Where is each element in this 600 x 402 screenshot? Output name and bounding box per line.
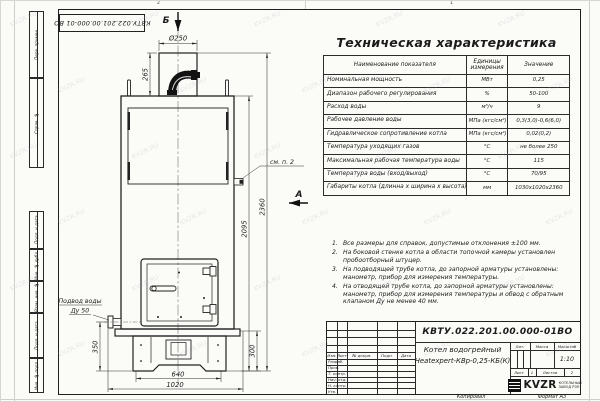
frame-column-label: Взам. инв. №: [30, 282, 43, 312]
frame-column-box: Перв. примен.: [29, 11, 44, 78]
drawing-sheet: 2 1 Перв. примен. Справ. № Подп. и дата …: [0, 0, 600, 402]
base-plinth: [133, 336, 226, 371]
sampling-fitting: см. п. 2: [234, 159, 304, 185]
dimensions: Ø250 265 2360 2095 350 300 640: [92, 35, 272, 393]
water-inlet: Подвод воды Ду 50: [58, 298, 141, 328]
furnace-door: [141, 259, 218, 326]
inlet-label-line2: Ду 50: [70, 308, 89, 315]
dim-chimney-height: 265: [142, 68, 150, 81]
dim-total-height: 2360: [259, 198, 267, 215]
frame-column-label: Справ. №: [30, 79, 43, 167]
frame-column-label: Инв. № подл.: [30, 359, 43, 392]
frame-column-label: Инв. № дубл.: [30, 250, 43, 280]
section-arrow-top: Б: [163, 12, 178, 31]
frame-column-box: Инв. № дубл.: [29, 249, 44, 281]
frame-column-box: Взам. инв. №: [29, 281, 44, 313]
dim-chimney-diameter: Ø250: [168, 35, 187, 43]
dim-inlet-height: 350: [92, 341, 100, 354]
dim-base-height: 300: [249, 345, 257, 358]
boiler-drawing: Б А см. п. 2: [1, 1, 600, 401]
section-letter-b: Б: [163, 16, 170, 26]
callout-label: см. п. 2: [270, 159, 294, 166]
frame-column-box: Справ. №: [29, 78, 44, 168]
frame-column-label: Перв. примен.: [30, 12, 43, 77]
dim-feet-width: 640: [172, 371, 185, 379]
inlet-label-line1: Подвод воды: [59, 298, 102, 305]
section-arrow-side: А: [289, 190, 308, 203]
frame-column-label: Подп. и дата: [30, 212, 43, 248]
frame-column-box: Инв. № подл.: [29, 358, 44, 393]
boiler-body: [115, 80, 240, 336]
frame-column-label: Подп. и дата: [30, 314, 43, 357]
frame-column-box: Подп. и дата: [29, 313, 44, 358]
chimney: [159, 53, 200, 96]
frame-column-box: Подп. и дата: [29, 211, 44, 249]
section-letter-a: А: [295, 190, 303, 200]
dim-overall-width: 1020: [166, 381, 183, 389]
dim-body-height: 2095: [241, 220, 249, 237]
